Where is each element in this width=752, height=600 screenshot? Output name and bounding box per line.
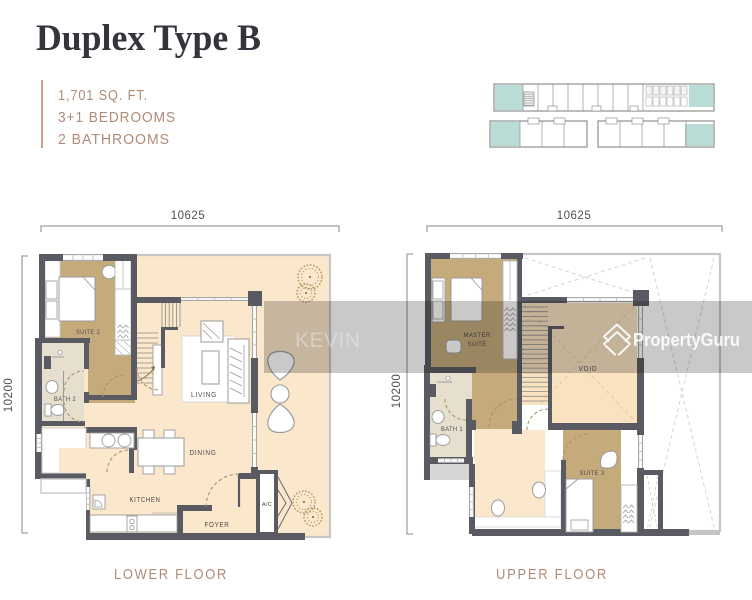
svg-text:Duplex Type B: Duplex Type B bbox=[36, 18, 261, 59]
svg-text:3+1 BEDROOMS: 3+1 BEDROOMS bbox=[58, 110, 176, 126]
svg-text:LOWER FLOOR: LOWER FLOOR bbox=[114, 566, 228, 583]
svg-text:UPPER FLOOR: UPPER FLOOR bbox=[496, 566, 608, 583]
svg-text:LIVING: LIVING bbox=[191, 390, 217, 399]
svg-text:2 BATHROOMS: 2 BATHROOMS bbox=[58, 132, 170, 148]
svg-text:10625: 10625 bbox=[171, 210, 205, 222]
svg-text:10200: 10200 bbox=[3, 378, 15, 412]
svg-text:A/C: A/C bbox=[262, 502, 272, 508]
svg-text:1,701 SQ. FT.: 1,701 SQ. FT. bbox=[58, 88, 148, 104]
svg-text:BATH 2: BATH 2 bbox=[54, 396, 76, 403]
svg-text:10200: 10200 bbox=[391, 374, 403, 408]
svg-text:10625: 10625 bbox=[557, 210, 591, 222]
svg-text:KEVIN: KEVIN bbox=[295, 329, 361, 352]
svg-text:FOYER: FOYER bbox=[205, 520, 230, 529]
svg-text:KITCHEN: KITCHEN bbox=[130, 495, 161, 504]
svg-text:SUITE 2: SUITE 2 bbox=[76, 329, 100, 336]
svg-text:DINING: DINING bbox=[190, 448, 217, 457]
svg-text:PropertyGuru: PropertyGuru bbox=[633, 329, 740, 350]
svg-text:SUITE 3: SUITE 3 bbox=[580, 470, 605, 477]
svg-text:BATH 1: BATH 1 bbox=[441, 426, 463, 433]
